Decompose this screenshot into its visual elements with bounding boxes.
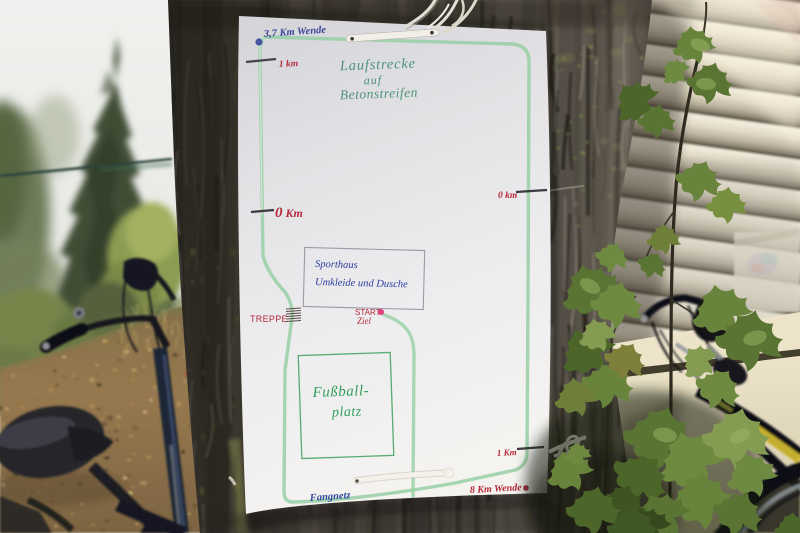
svg-text:Laufstrecke: Laufstrecke [339,56,416,75]
svg-text:0 km: 0 km [498,191,517,201]
svg-text:TREPPE: TREPPE [250,314,288,324]
svg-text:Betonstreifen: Betonstreifen [340,85,418,103]
svg-text:Ziel: Ziel [357,316,372,326]
svg-text:Fußball-: Fußball- [311,383,369,401]
svg-text:1 Km: 1 Km [497,447,517,458]
svg-text:platz: platz [331,404,362,420]
svg-text:Sporthaus: Sporthaus [315,259,358,271]
svg-text:0 Km: 0 Km [275,205,303,221]
svg-text:1 km: 1 km [279,59,299,70]
